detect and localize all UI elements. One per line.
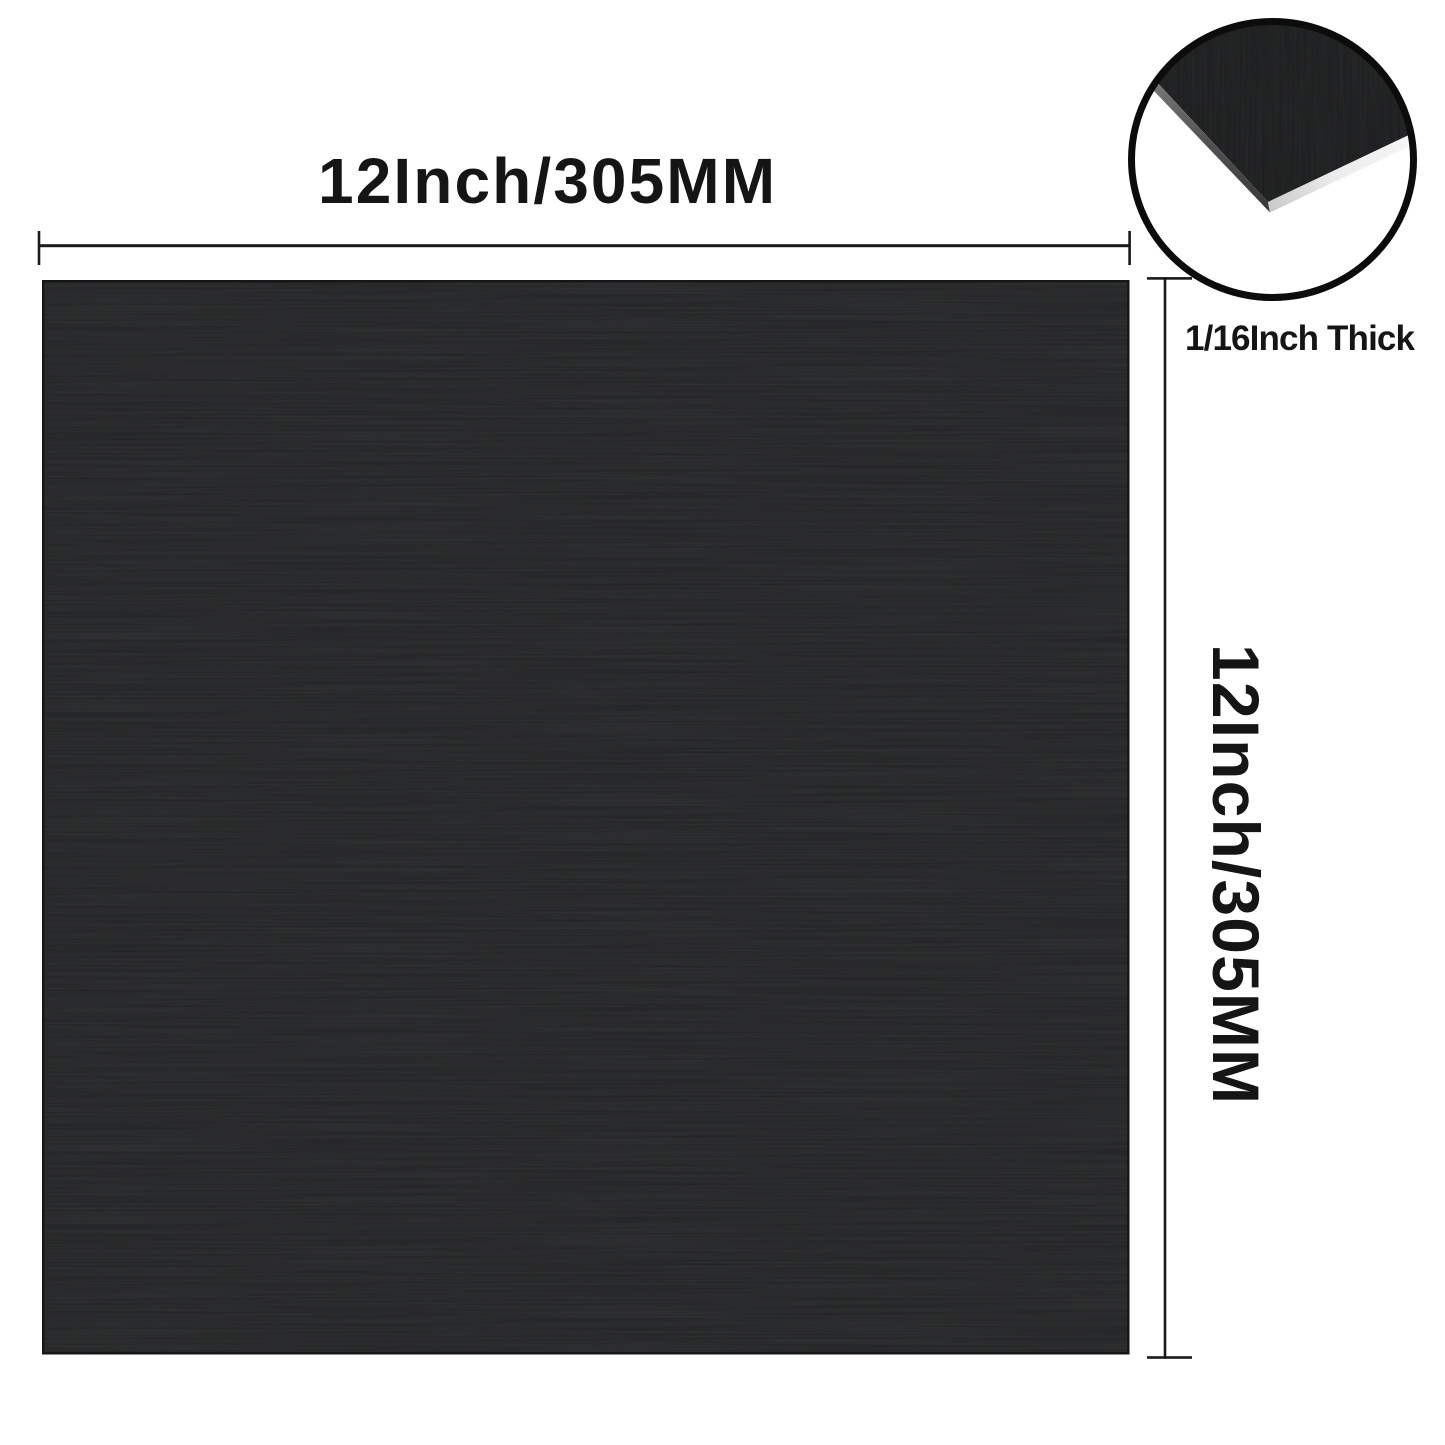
svg-text:1/16Inch Thick: 1/16Inch Thick xyxy=(1185,319,1416,358)
svg-text:12Inch/305MM: 12Inch/305MM xyxy=(1199,644,1273,1104)
svg-text:12Inch/305MM: 12Inch/305MM xyxy=(318,145,775,217)
